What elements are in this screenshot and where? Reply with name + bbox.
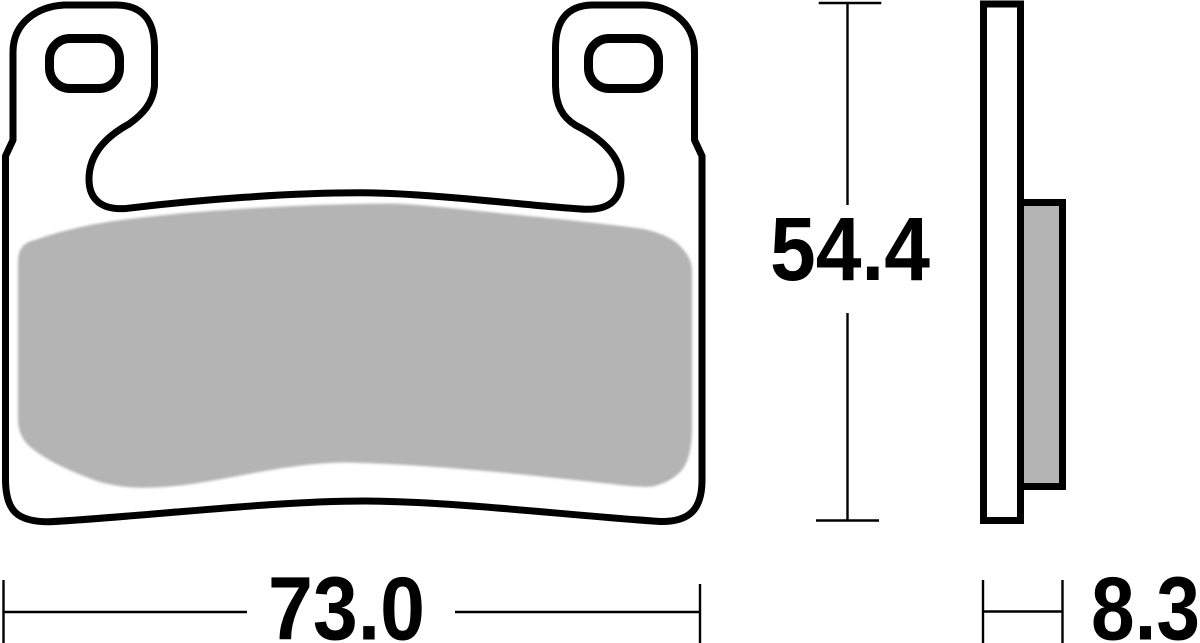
svg-text:73.0: 73.0 [268,560,425,643]
svg-text:8.3: 8.3 [1091,560,1200,643]
svg-text:54.4: 54.4 [770,200,930,300]
